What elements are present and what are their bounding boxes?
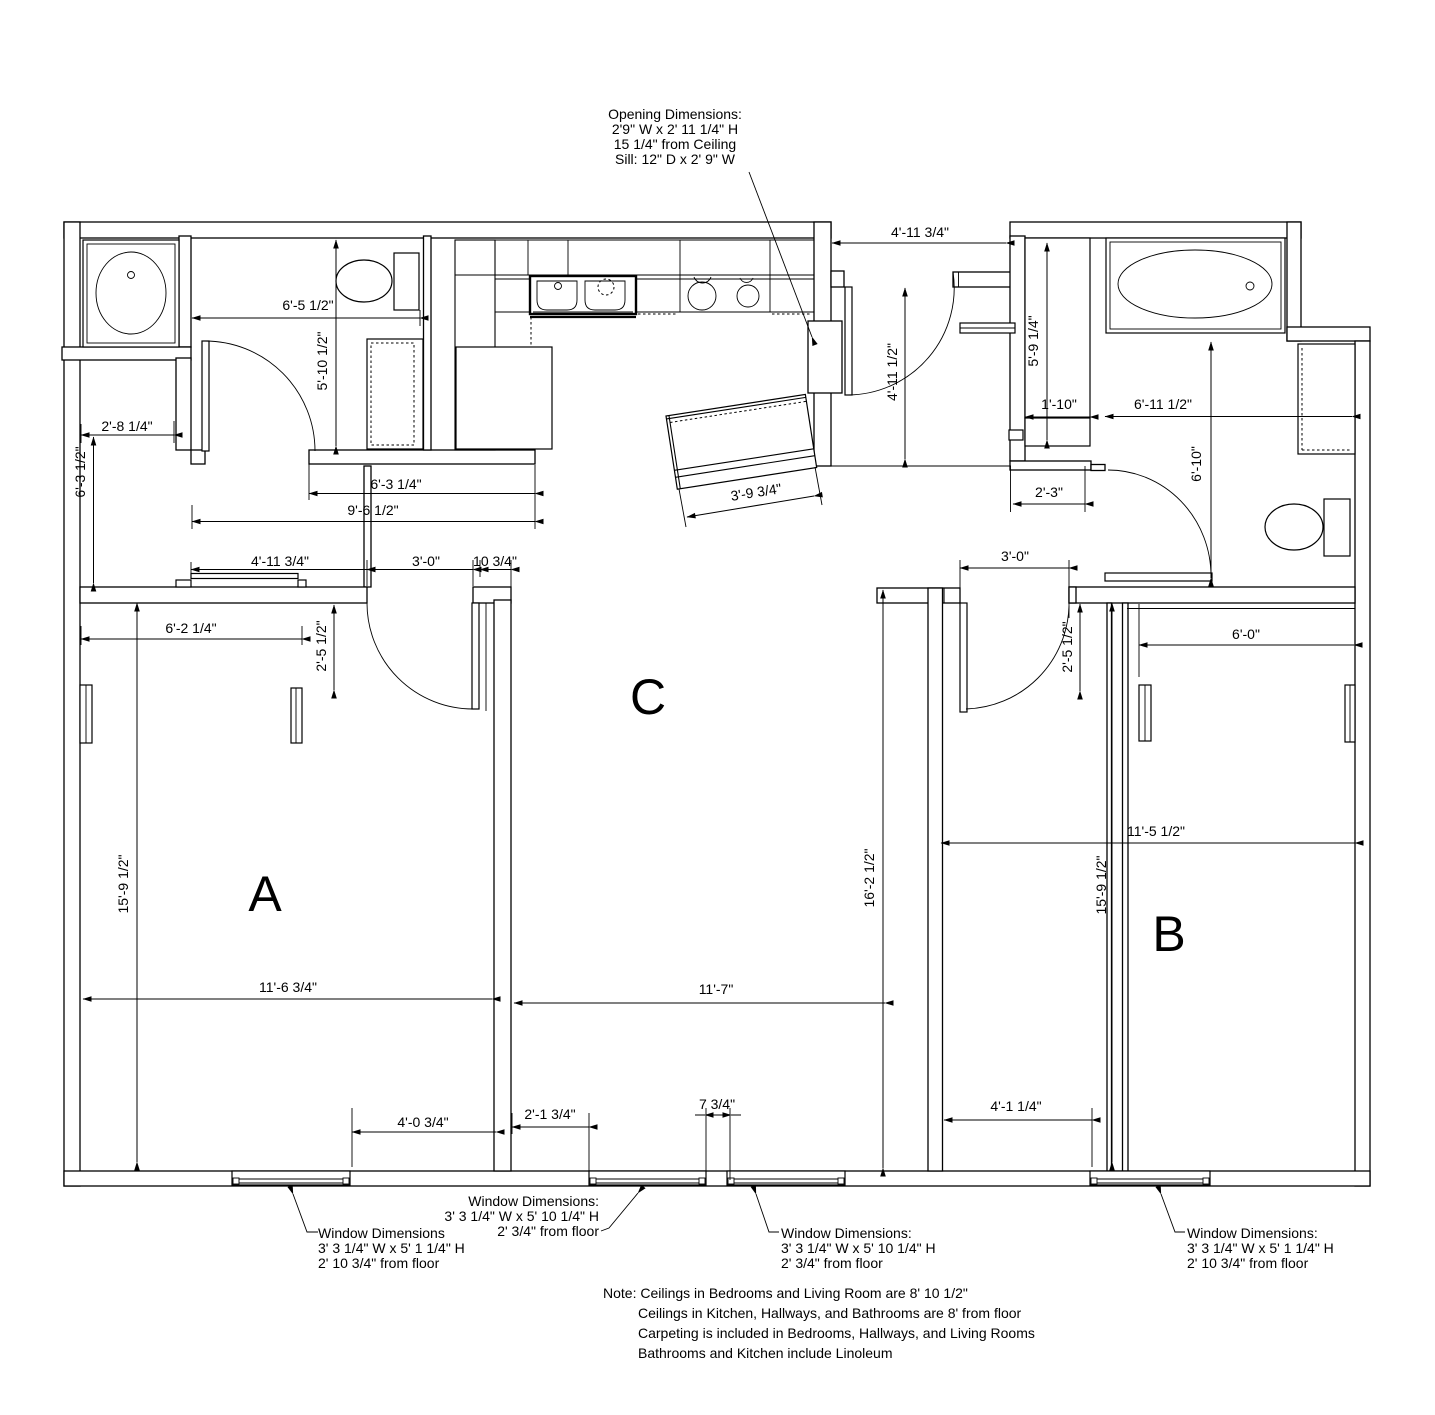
svg-text:3' 3 1/4" W x 5' 1 1/4" H: 3' 3 1/4" W x 5' 1 1/4" H: [1187, 1240, 1334, 1256]
svg-text:Window Dimensions:: Window Dimensions:: [1187, 1225, 1318, 1241]
svg-text:2'9" W x 2' 11 1/4" H: 2'9" W x 2' 11 1/4" H: [612, 121, 738, 137]
svg-text:3'-0": 3'-0": [412, 553, 440, 569]
svg-text:1'-10": 1'-10": [1041, 396, 1077, 412]
svg-text:15'-9 1/2": 15'-9 1/2": [115, 854, 131, 913]
svg-text:2'-8 1/4": 2'-8 1/4": [101, 418, 152, 434]
svg-text:Bathrooms and Kitchen include: Bathrooms and Kitchen include Linoleum: [638, 1345, 893, 1361]
svg-text:6'-11 1/2": 6'-11 1/2": [1134, 396, 1192, 412]
svg-text:9'-6 1/2": 9'-6 1/2": [347, 502, 398, 518]
svg-text:7 3/4": 7 3/4": [699, 1096, 735, 1112]
svg-text:11'-7": 11'-7": [699, 981, 734, 997]
svg-text:C: C: [630, 669, 666, 725]
svg-text:6'-0": 6'-0": [1232, 626, 1260, 642]
svg-text:4'-0 3/4": 4'-0 3/4": [397, 1114, 448, 1130]
svg-text:A: A: [248, 866, 282, 922]
svg-text:4'-11 3/4": 4'-11 3/4": [891, 224, 949, 240]
svg-text:B: B: [1152, 906, 1185, 962]
svg-text:2' 3/4" from floor: 2' 3/4" from floor: [781, 1255, 883, 1271]
svg-text:16'-2 1/2": 16'-2 1/2": [861, 848, 877, 907]
svg-text:4'-11 1/2": 4'-11 1/2": [884, 343, 900, 401]
svg-text:2' 10 3/4" from floor: 2' 10 3/4" from floor: [1187, 1255, 1309, 1271]
svg-text:2'-1 3/4": 2'-1 3/4": [524, 1106, 575, 1122]
svg-text:11'-6 3/4": 11'-6 3/4": [259, 979, 317, 995]
svg-text:Window Dimensions:: Window Dimensions:: [781, 1225, 912, 1241]
svg-text:15 1/4" from Ceiling: 15 1/4" from Ceiling: [614, 136, 736, 152]
svg-text:15'-9 1/2": 15'-9 1/2": [1093, 855, 1109, 914]
svg-text:5'-10 1/2": 5'-10 1/2": [314, 331, 330, 390]
svg-text:2'-5 1/2": 2'-5 1/2": [1059, 621, 1075, 672]
svg-text:3'-0": 3'-0": [1001, 548, 1029, 564]
svg-text:Sill: 12" D x 2' 9" W: Sill: 12" D x 2' 9" W: [615, 151, 736, 167]
svg-text:3' 3 1/4" W x 5' 1 1/4" H: 3' 3 1/4" W x 5' 1 1/4" H: [318, 1240, 465, 1256]
svg-text:6'-3 1/4": 6'-3 1/4": [370, 476, 421, 492]
svg-text:2' 3/4" from floor: 2' 3/4" from floor: [497, 1223, 599, 1239]
svg-text:Carpeting is included in Bedro: Carpeting is included in Bedrooms, Hallw…: [638, 1325, 1035, 1341]
svg-text:5'-9 1/4": 5'-9 1/4": [1025, 315, 1041, 366]
svg-text:Window Dimensions:: Window Dimensions:: [468, 1193, 599, 1209]
svg-text:6'-2 1/4": 6'-2 1/4": [165, 620, 216, 636]
svg-text:4'-11 3/4": 4'-11 3/4": [251, 553, 309, 569]
svg-text:3' 3 1/4" W x 5' 10 1/4" H: 3' 3 1/4" W x 5' 10 1/4" H: [781, 1240, 936, 1256]
svg-text:Note: Ceilings in Bedrooms and: Note: Ceilings in Bedrooms and Living Ro…: [603, 1285, 968, 1301]
svg-text:Ceilings in Kitchen, Hallways,: Ceilings in Kitchen, Hallways, and Bathr…: [638, 1305, 1022, 1321]
svg-text:2'-5 1/2": 2'-5 1/2": [313, 620, 329, 671]
svg-text:6'-10": 6'-10": [1188, 446, 1204, 482]
svg-text:Opening Dimensions:: Opening Dimensions:: [608, 106, 742, 122]
svg-text:11'-5 1/2": 11'-5 1/2": [1127, 823, 1185, 839]
svg-text:6'-3 1/2": 6'-3 1/2": [72, 446, 88, 497]
svg-text:3' 3 1/4" W x 5' 10 1/4" H: 3' 3 1/4" W x 5' 10 1/4" H: [444, 1208, 599, 1224]
svg-text:10 3/4": 10 3/4": [473, 553, 517, 569]
svg-text:2' 10 3/4" from floor: 2' 10 3/4" from floor: [318, 1255, 440, 1271]
svg-text:4'-1 1/4": 4'-1 1/4": [990, 1098, 1041, 1114]
svg-text:Window Dimensions: Window Dimensions: [318, 1225, 445, 1241]
svg-text:6'-5 1/2": 6'-5 1/2": [282, 297, 333, 313]
svg-text:2'-3": 2'-3": [1035, 484, 1063, 500]
